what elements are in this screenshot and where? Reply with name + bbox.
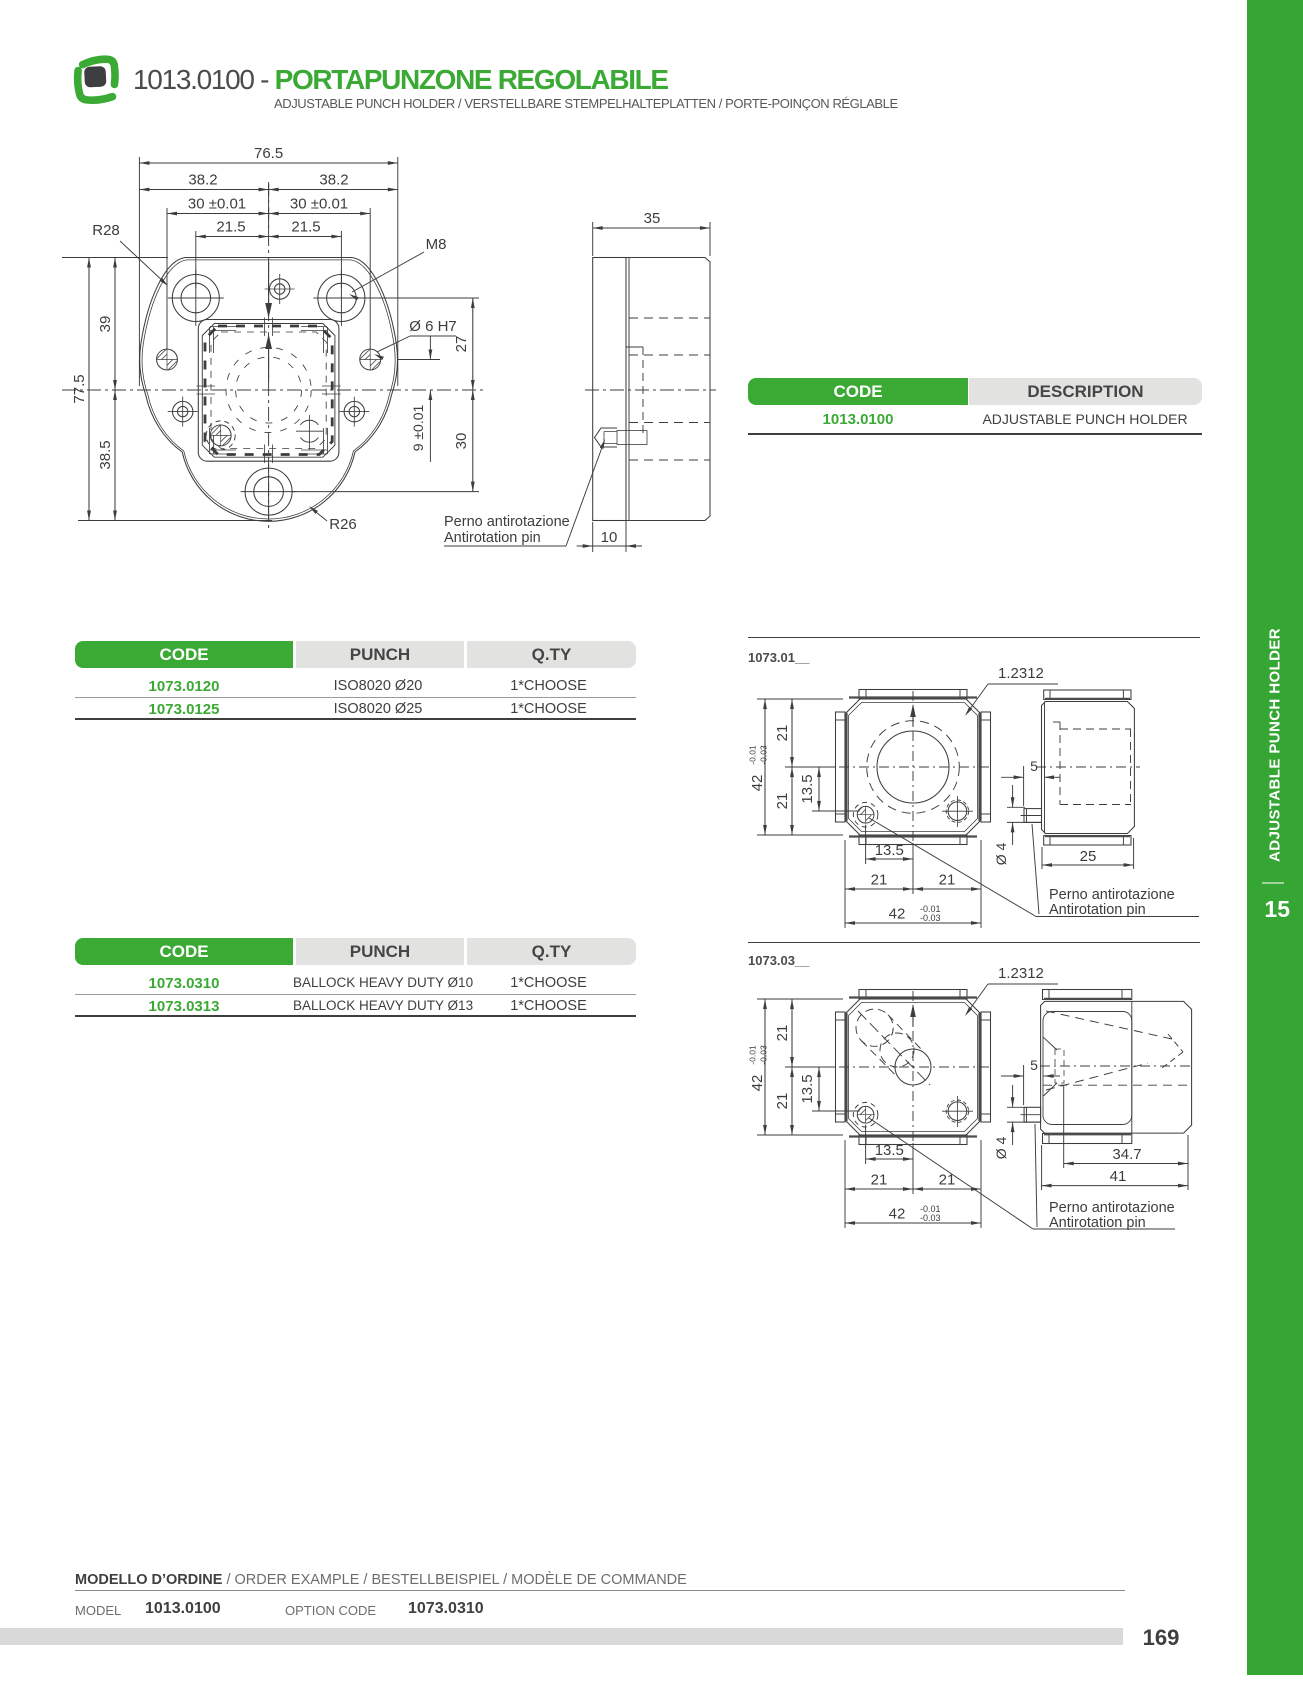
- svg-text:35: 35: [644, 210, 661, 227]
- svg-text:21: 21: [939, 872, 956, 889]
- svg-text:Ø 6 H7: Ø 6 H7: [409, 318, 457, 335]
- svg-text:34.7: 34.7: [1112, 1146, 1141, 1163]
- svg-text:77.5: 77.5: [71, 374, 88, 403]
- svg-text:10: 10: [601, 529, 618, 546]
- svg-text:76.5: 76.5: [254, 145, 283, 162]
- svg-text:21: 21: [774, 1093, 791, 1110]
- svg-text:R26: R26: [329, 516, 357, 533]
- svg-text:M8: M8: [426, 236, 447, 253]
- svg-text:-0.03: -0.03: [920, 1213, 941, 1223]
- svg-text:25: 25: [1080, 848, 1097, 865]
- svg-text:21.5: 21.5: [291, 219, 320, 236]
- svg-text:21: 21: [774, 793, 791, 810]
- svg-text:21.5: 21.5: [216, 219, 245, 236]
- svg-text:13.5: 13.5: [799, 1074, 816, 1103]
- svg-text:5: 5: [1030, 758, 1038, 774]
- svg-text:Antirotation pin: Antirotation pin: [1049, 1215, 1146, 1231]
- svg-text:41: 41: [1110, 1168, 1127, 1185]
- svg-text:Perno antirotazione: Perno antirotazione: [1049, 1200, 1175, 1216]
- svg-text:38.2: 38.2: [188, 172, 217, 189]
- svg-text:-0.03: -0.03: [920, 913, 941, 923]
- svg-text:Perno antirotazione: Perno antirotazione: [1049, 887, 1175, 903]
- svg-text:38.5: 38.5: [97, 440, 114, 469]
- svg-text:R28: R28: [92, 222, 120, 239]
- svg-text:27: 27: [453, 336, 470, 353]
- svg-text:13.5: 13.5: [799, 774, 816, 803]
- svg-text:Ø 4: Ø 4: [993, 1137, 1009, 1160]
- svg-text:38.2: 38.2: [319, 172, 348, 189]
- svg-text:13.5: 13.5: [875, 842, 904, 859]
- svg-text:21: 21: [774, 725, 791, 742]
- svg-text:30 ±0.01: 30 ±0.01: [290, 196, 348, 213]
- svg-text:21: 21: [871, 1172, 888, 1189]
- svg-text:42: 42: [749, 1075, 766, 1092]
- svg-text:1.2312: 1.2312: [998, 965, 1044, 982]
- svg-text:-0.03: -0.03: [759, 745, 769, 765]
- svg-text:9 ±0.01: 9 ±0.01: [410, 404, 426, 451]
- svg-text:21: 21: [774, 1025, 791, 1042]
- svg-text:21: 21: [871, 872, 888, 889]
- svg-text:13.5: 13.5: [875, 1142, 904, 1159]
- svg-text:42: 42: [749, 775, 766, 792]
- svg-text:30: 30: [453, 433, 470, 450]
- svg-text:Antirotation pin: Antirotation pin: [444, 530, 541, 546]
- svg-text:Ø 4: Ø 4: [993, 843, 1009, 866]
- svg-text:-0.03: -0.03: [759, 1045, 769, 1065]
- svg-text:5: 5: [1030, 1057, 1038, 1073]
- svg-text:1.2312: 1.2312: [998, 665, 1044, 682]
- svg-text:39: 39: [97, 316, 114, 333]
- svg-text:42: 42: [889, 1206, 906, 1223]
- svg-text:-0.01: -0.01: [748, 1045, 758, 1065]
- svg-text:30 ±0.01: 30 ±0.01: [188, 196, 246, 213]
- svg-text:Antirotation pin: Antirotation pin: [1049, 902, 1146, 918]
- svg-text:Perno antirotazione: Perno antirotazione: [444, 514, 570, 530]
- svg-text:-0.01: -0.01: [748, 745, 758, 765]
- svg-text:21: 21: [939, 1172, 956, 1189]
- svg-text:42: 42: [889, 906, 906, 923]
